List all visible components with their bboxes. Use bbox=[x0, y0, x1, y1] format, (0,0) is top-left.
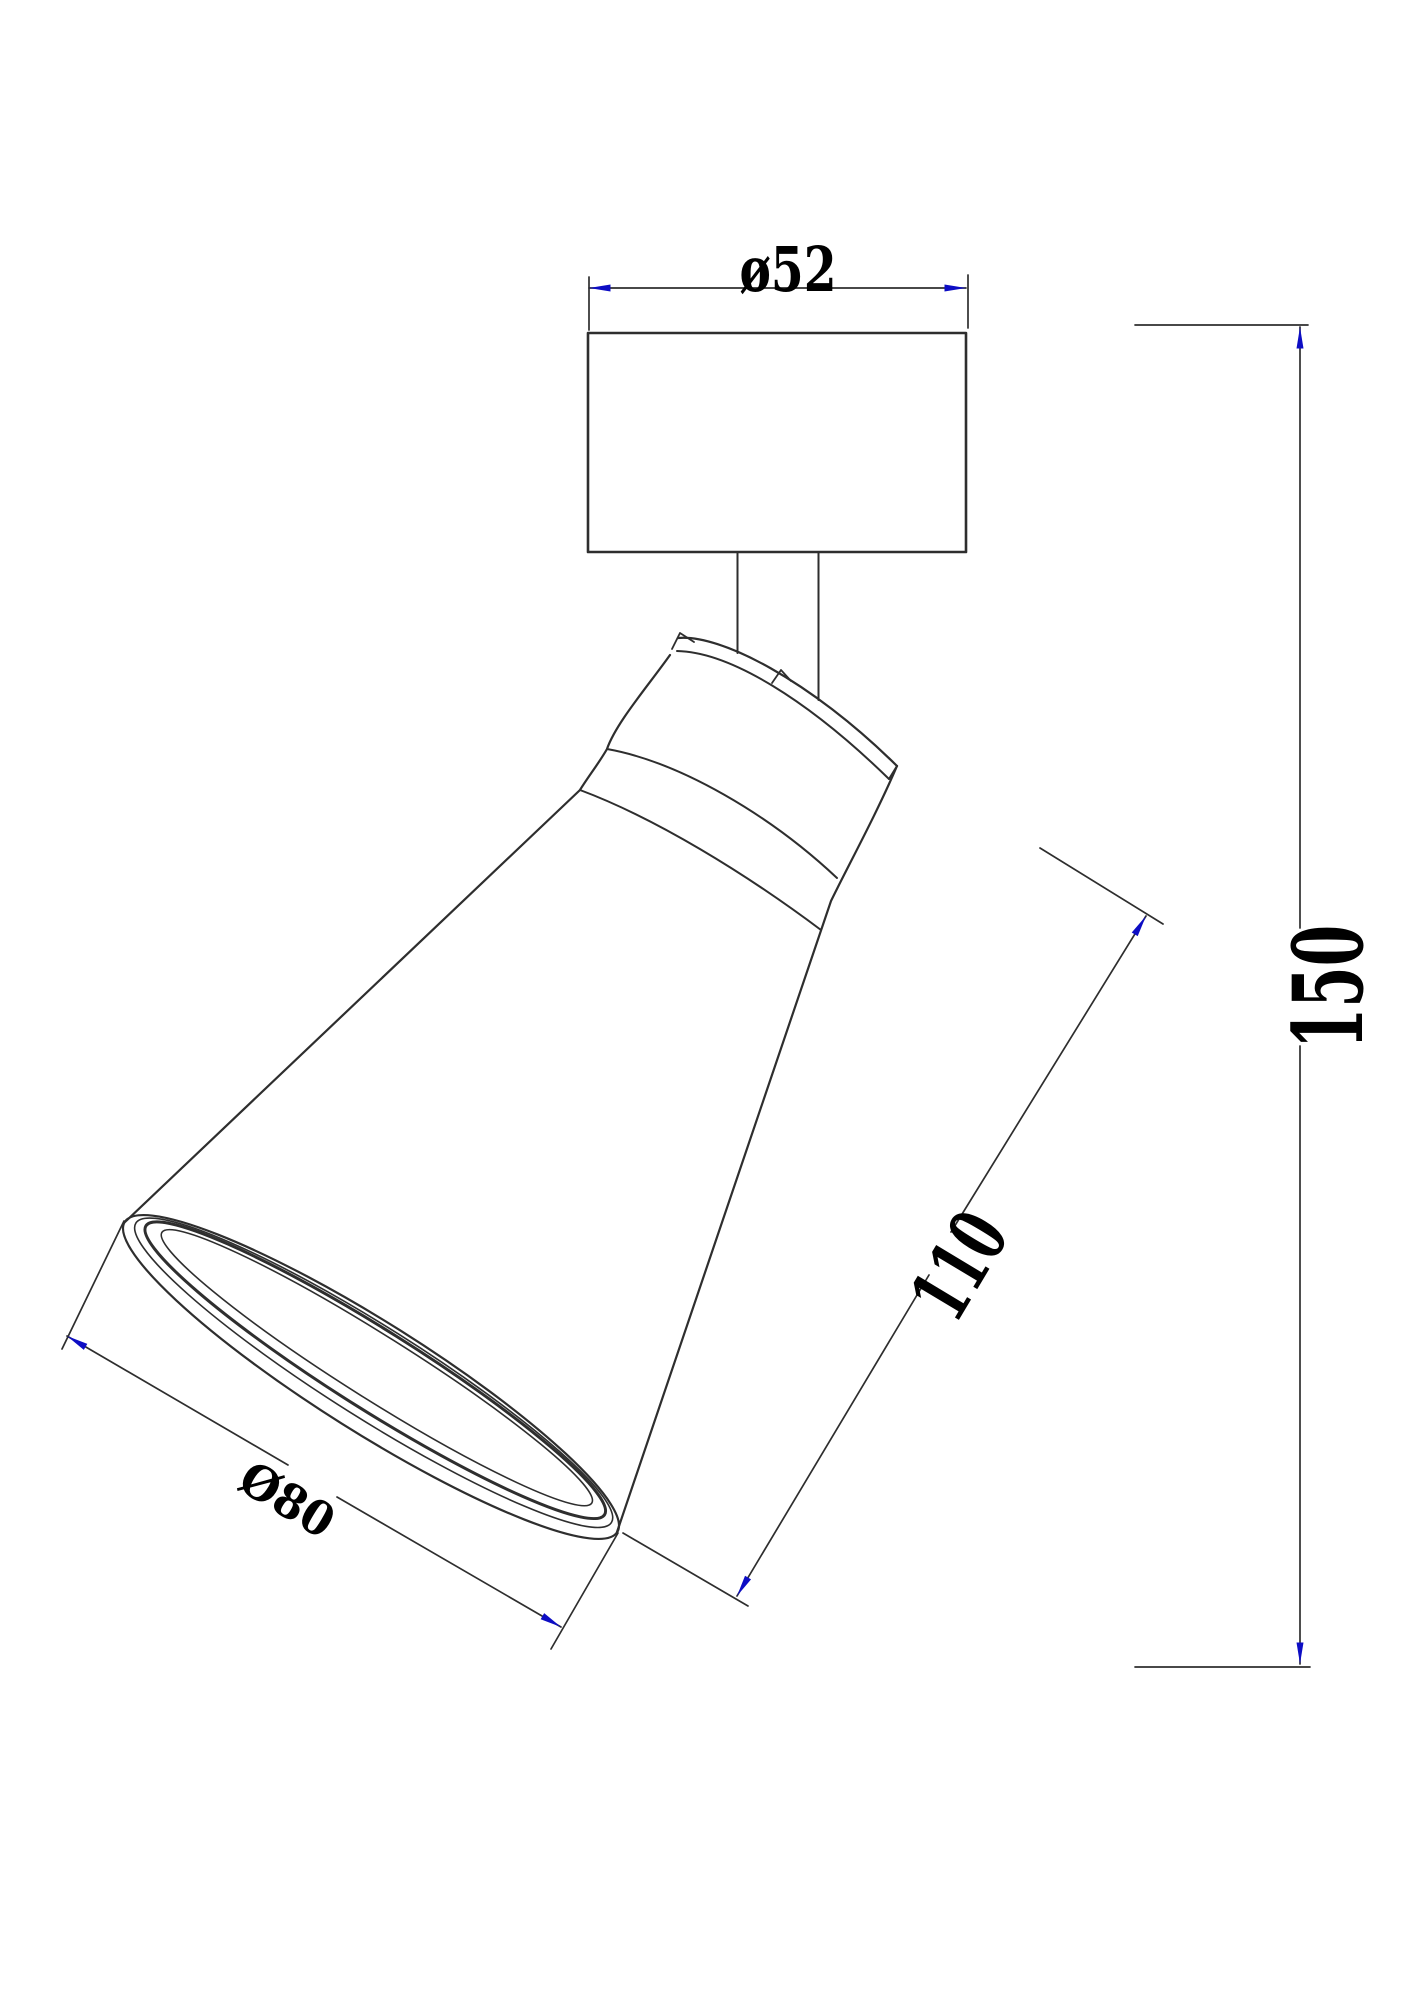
ext-line-left bbox=[62, 1221, 124, 1349]
technical-drawing: ø52 150 110 Ø80 bbox=[0, 0, 1414, 2000]
cone-band-upper bbox=[607, 749, 837, 878]
dim-line-right bbox=[337, 1497, 561, 1627]
ext-line-bottom bbox=[623, 1533, 748, 1606]
cone-right-edge bbox=[617, 766, 897, 1532]
fixture-outline bbox=[95, 333, 966, 1579]
dim-line-left bbox=[67, 1336, 288, 1465]
dim-line-upper bbox=[951, 916, 1146, 1232]
neck-notch-left bbox=[672, 633, 694, 649]
shade-rim-inner-ellipse bbox=[145, 1205, 609, 1530]
label-canopy-diameter: ø52 bbox=[740, 232, 837, 305]
shade-rim-mid-ellipse bbox=[111, 1184, 636, 1561]
canopy-rect bbox=[588, 333, 966, 552]
label-overall-height: 150 bbox=[1272, 925, 1385, 1049]
dimension-lines bbox=[62, 275, 1310, 1667]
neck-notch-top bbox=[772, 670, 791, 683]
dim-body-length bbox=[623, 848, 1163, 1606]
ext-line-right bbox=[551, 1533, 618, 1649]
drawing-page: ø52 150 110 Ø80 bbox=[0, 0, 1414, 2000]
cone-left-edge bbox=[125, 655, 670, 1222]
shade-rim-outer-ellipse bbox=[95, 1175, 646, 1578]
neck-rim-inner bbox=[677, 651, 889, 779]
ext-line-top bbox=[1040, 848, 1163, 924]
shade-rim-heavy-ellipse bbox=[125, 1192, 626, 1549]
cone-band-lower bbox=[580, 790, 821, 930]
dimension-labels: ø52 150 110 Ø80 bbox=[230, 232, 1385, 1549]
shade-rim bbox=[95, 1175, 646, 1578]
dim-line-lower bbox=[737, 1275, 929, 1596]
label-body-length: 110 bbox=[892, 1196, 1026, 1336]
